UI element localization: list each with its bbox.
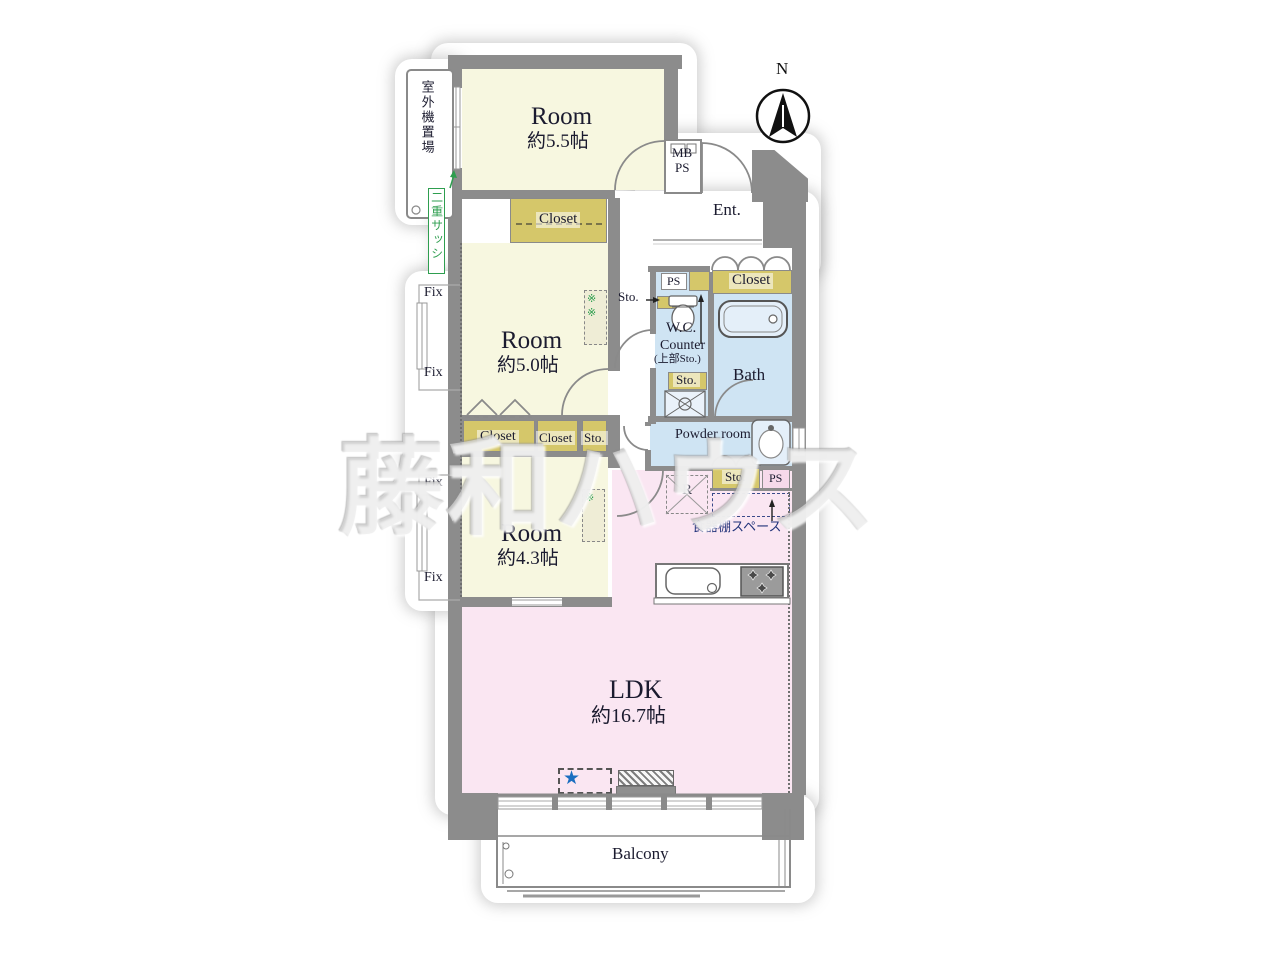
pipe-space-box: [689, 271, 710, 291]
note-mark: ※: [587, 308, 596, 320]
pipe-space-label: PS: [769, 472, 782, 485]
wall: [448, 168, 462, 243]
storage-label: Sto.: [618, 290, 639, 304]
wall: [763, 202, 806, 248]
entrance-label: Ent.: [713, 201, 741, 219]
wall-pier: [762, 793, 804, 840]
room-fill-bath: [714, 293, 792, 418]
closet-label: Closet: [536, 431, 575, 445]
storage-label: Sto.: [673, 373, 700, 387]
wall: [608, 198, 620, 371]
pipe-space-label: PS: [675, 161, 689, 175]
bedroom3-label: Room: [501, 521, 562, 547]
pipe-space-label: PS: [667, 275, 680, 288]
partition: [645, 422, 651, 426]
fix-window-label: Fix: [424, 366, 443, 381]
compass-icon: [757, 90, 809, 142]
closet-label: Closet: [477, 430, 519, 445]
dish-shelf-label: 食器棚スペース: [692, 520, 781, 534]
storage-label: Sto.: [722, 470, 749, 484]
closet-label: Closet: [729, 273, 773, 289]
wall: [792, 248, 806, 490]
double-sash-label: 二重サッシ: [428, 188, 445, 274]
dish-shelf-space-box: [712, 493, 790, 517]
bedroom1-size: 約5.5帖: [527, 132, 589, 152]
bedroom2-size: 約5.0帖: [497, 356, 559, 376]
camera-star-icon: ★: [563, 769, 580, 789]
powder-room-label: Powder room: [675, 428, 751, 443]
storage-label: Sto.: [581, 431, 608, 445]
bath-label: Bath: [733, 366, 765, 384]
partition: [650, 268, 656, 334]
partition: [645, 450, 651, 466]
ldk-label: LDK: [609, 676, 662, 703]
wc-counter-label: Counter: [660, 339, 705, 354]
partition: [648, 416, 792, 422]
ldk-size: 約16.7帖: [591, 706, 666, 727]
wc-label: W.C.: [666, 321, 696, 337]
bedroom1-label: Room: [531, 104, 592, 130]
balcony-label: Balcony: [612, 845, 669, 863]
wall: [448, 55, 682, 69]
storage-box: [657, 296, 677, 309]
hatched-wall-block: [618, 770, 674, 786]
wall-block: [616, 786, 676, 799]
wall: [792, 490, 806, 795]
floorplan-image: Room 約5.5帖 Closet Room 約5.0帖 Room 約4.3帖 …: [0, 0, 1280, 960]
note-mark: ※: [585, 493, 594, 505]
compass-north-label: N: [776, 60, 788, 78]
wall: [664, 69, 678, 139]
wall-edge-dotted: [788, 492, 790, 793]
fix-window-label: Fix: [424, 286, 443, 301]
fix-window-label: Fix: [424, 476, 443, 491]
note-mark: ※: [587, 294, 596, 306]
fix-window-label: Fix: [424, 571, 443, 586]
wall: [448, 597, 462, 795]
bedroom2-label: Room: [501, 328, 562, 354]
wall-edge-dotted: [460, 243, 462, 597]
partition: [708, 272, 714, 422]
wall: [448, 69, 462, 88]
closet-label: Closet: [536, 212, 580, 228]
wall-pier: [448, 793, 498, 840]
wc-counter-note: (上部Sto.): [654, 354, 701, 366]
wall: [448, 597, 612, 607]
bedroom3-size: 約4.3帖: [497, 549, 559, 569]
meter-box-label: MB: [672, 146, 692, 160]
refrigerator-label: R: [682, 483, 692, 499]
